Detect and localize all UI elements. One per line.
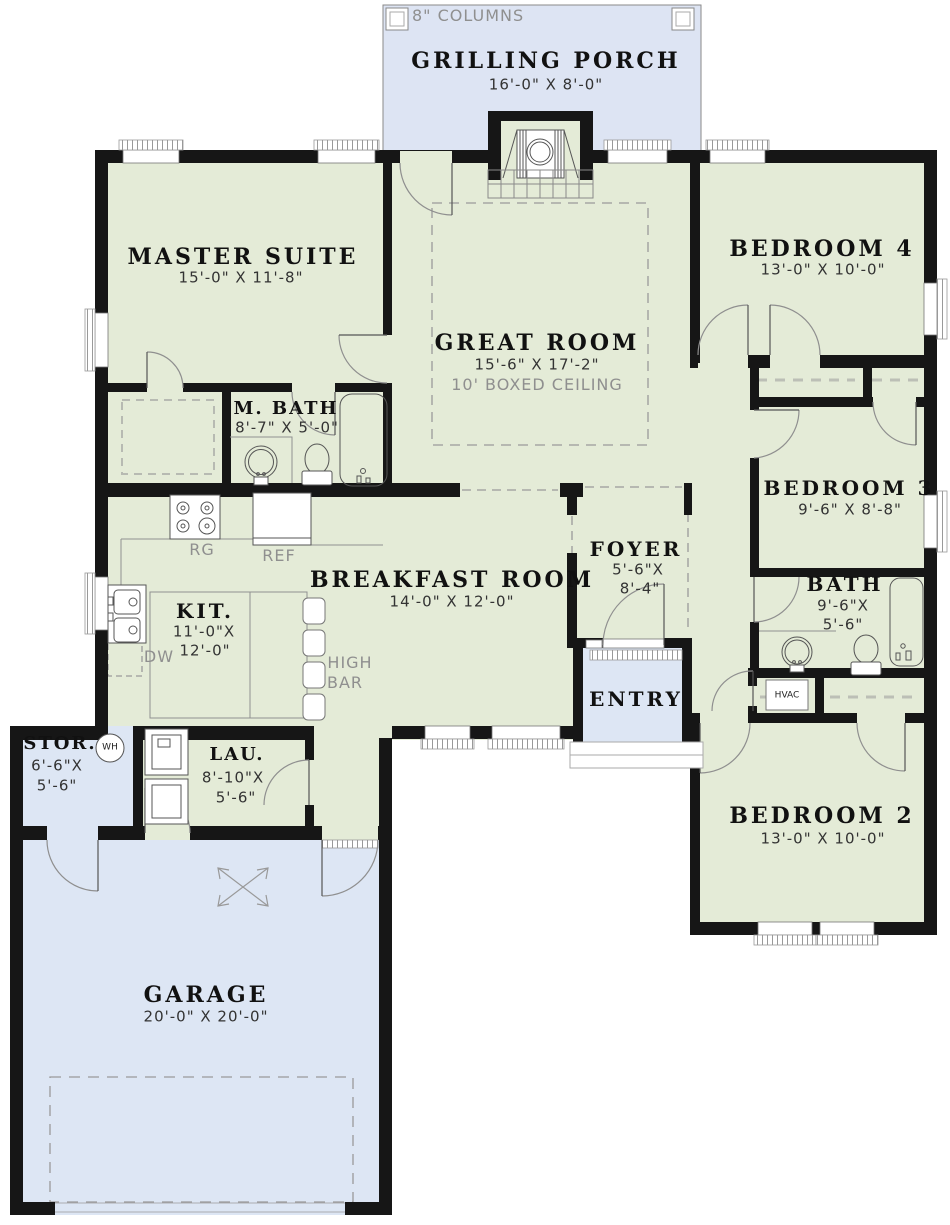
garage-dims: 20'-0" X 20'-0" — [144, 1010, 269, 1025]
hvac-label: HVAC — [775, 692, 800, 701]
water-heater-label: WH — [102, 744, 118, 753]
bedroom3-title: BEDROOM 3 — [764, 478, 935, 498]
master-suite-dims: 15'-0" X 11'-8" — [179, 271, 304, 286]
storage-dims1: 6'-6"X — [31, 759, 83, 774]
bath-dims2: 5'-6" — [823, 618, 864, 633]
bath-title: BATH — [806, 574, 883, 594]
floorplan-drawing — [0, 0, 950, 1225]
foyer-title: FOYER — [590, 539, 683, 559]
storage-title: STOR. — [23, 735, 96, 753]
columns-note: 8" COLUMNS — [412, 8, 524, 24]
master-suite-title: MASTER SUITE — [128, 246, 359, 268]
master-bath-dims: 8'-7" X 5'-0" — [235, 421, 339, 436]
fridge-label: REF — [262, 548, 295, 564]
bedroom2-title: BEDROOM 2 — [729, 805, 914, 827]
breakfast-room-dims: 14'-0" X 12'-0" — [390, 595, 515, 610]
great-room-title: GREAT ROOM — [435, 332, 640, 354]
porch-title: GRILLING PORCH — [411, 50, 680, 72]
range-label: RG — [189, 542, 215, 558]
laundry-title: LAU. — [210, 746, 265, 764]
entry-steps — [570, 742, 703, 768]
high-bar-label-1: HIGH — [327, 655, 372, 671]
entry-title: ENTRY — [589, 689, 683, 709]
porch-dims: 16'-0" X 8'-0" — [489, 78, 603, 93]
great-room-dims: 15'-6" X 17'-2" — [475, 358, 600, 373]
storage-dims2: 5'-6" — [37, 779, 78, 794]
foyer-dims2: 8'-4" — [620, 582, 661, 597]
bedroom3-dims: 9'-6" X 8'-8" — [798, 503, 902, 518]
bedroom4-title: BEDROOM 4 — [729, 238, 914, 260]
garage-title: GARAGE — [144, 984, 269, 1006]
laundry-dims1: 8'-10"X — [202, 771, 264, 786]
floor-plan: 8" COLUMNS GRILLING PORCH 16'-0" X 8'-0"… — [0, 0, 950, 1225]
high-bar-label-2: BAR — [327, 675, 363, 691]
dishwasher-label: DW — [144, 649, 174, 665]
foyer-dims1: 5'-6"X — [612, 563, 664, 578]
bedroom2-dims: 13'-0" X 10'-0" — [761, 832, 886, 847]
kitchen-dims1: 11'-0"X — [173, 625, 235, 640]
laundry-dims2: 5'-6" — [216, 791, 257, 806]
kitchen-dims2: 12'-0" — [179, 644, 230, 659]
kitchen-title: KIT. — [176, 601, 234, 621]
master-bath-title: M. BATH — [233, 400, 338, 418]
bath-dims1: 9'-6"X — [817, 599, 869, 614]
bedroom4-dims: 13'-0" X 10'-0" — [761, 263, 886, 278]
great-room-ceiling-note: 10' BOXED CEILING — [451, 377, 623, 393]
breakfast-room-title: BREAKFAST ROOM — [310, 569, 594, 591]
